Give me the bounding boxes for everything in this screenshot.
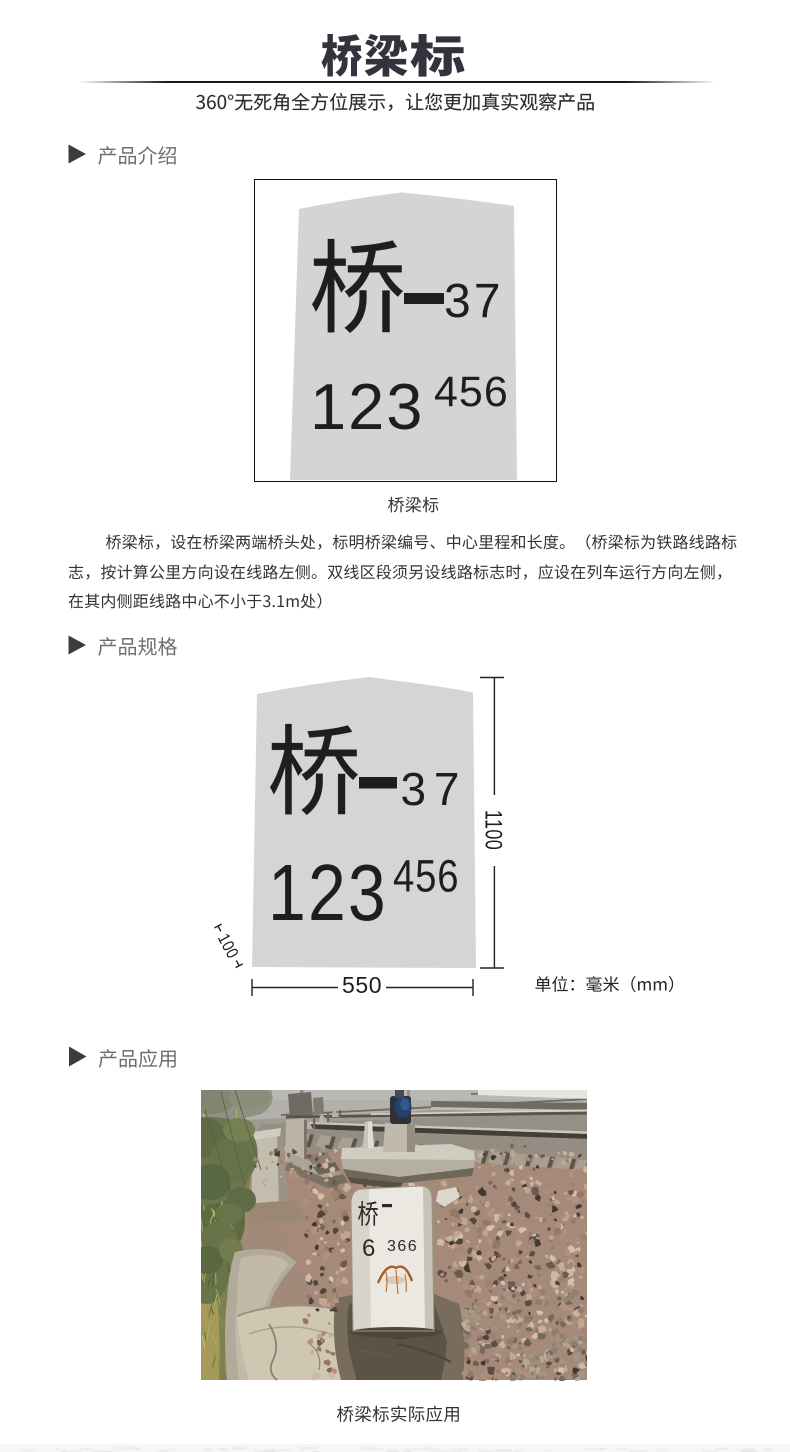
svg-text:37: 37 bbox=[444, 275, 504, 328]
svg-text:123: 123 bbox=[268, 848, 388, 937]
svg-text:1100: 1100 bbox=[480, 810, 506, 850]
svg-text:37: 37 bbox=[401, 763, 468, 815]
svg-text:6: 6 bbox=[362, 1235, 375, 1262]
svg-text:456: 456 bbox=[434, 368, 509, 416]
svg-text:123: 123 bbox=[310, 370, 424, 443]
svg-text:366: 366 bbox=[387, 1238, 418, 1255]
svg-text:550: 550 bbox=[342, 972, 382, 998]
svg-text:100: 100 bbox=[214, 931, 242, 962]
svg-text:456: 456 bbox=[393, 851, 459, 902]
